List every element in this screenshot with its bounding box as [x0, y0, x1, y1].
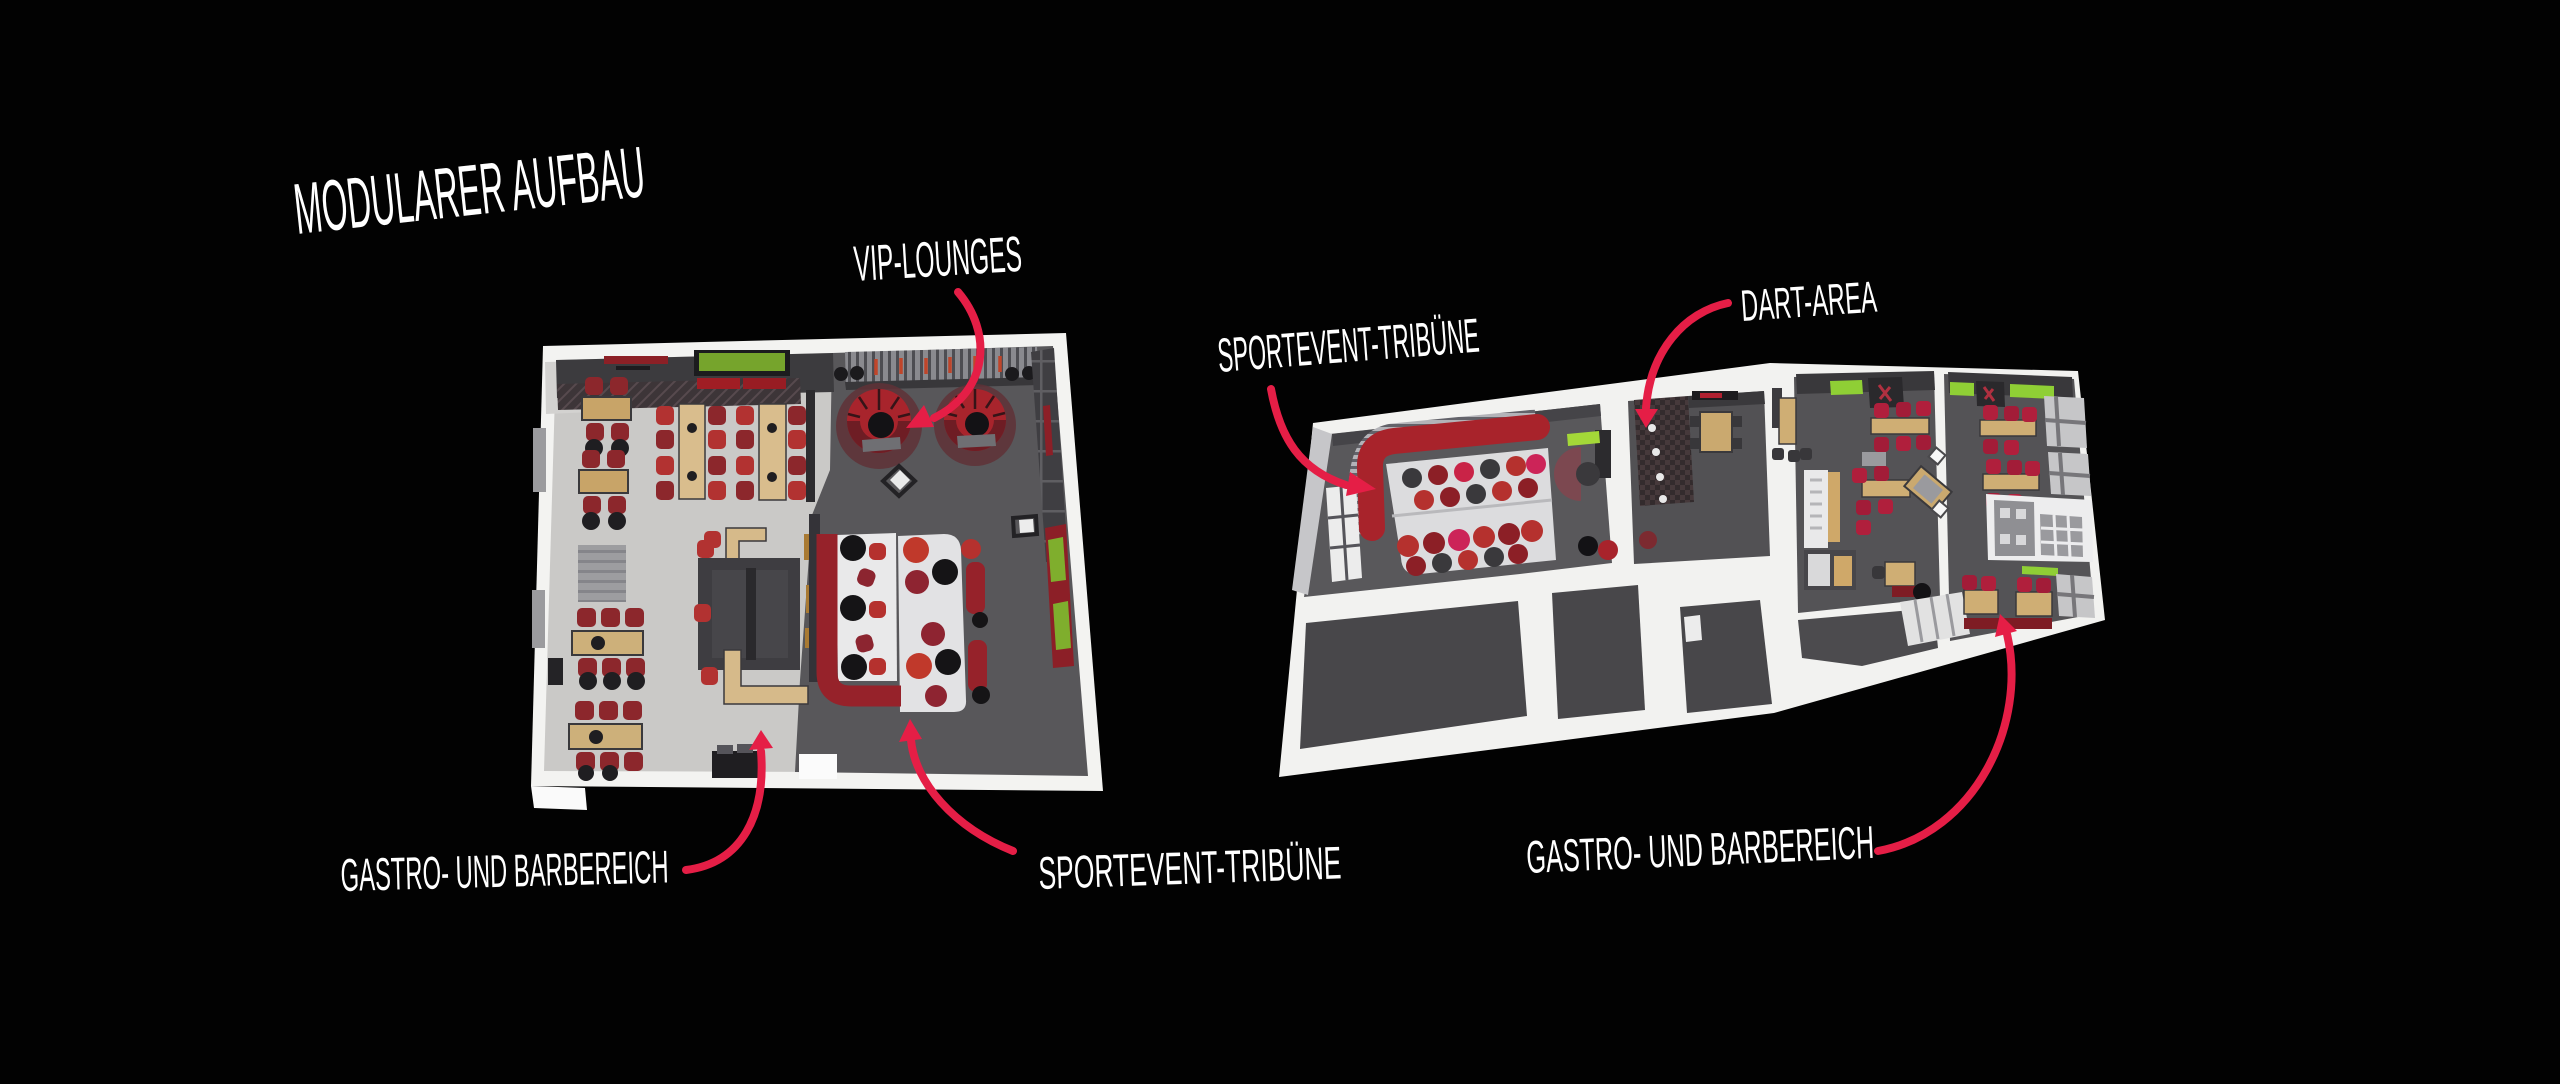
svg-text:DART-AREA: DART-AREA	[1739, 273, 1878, 331]
svg-text:VIP-LOUNGES: VIP-LOUNGES	[852, 226, 1023, 292]
svg-text:SPORTEVENT-TRIBÜNE: SPORTEVENT-TRIBÜNE	[1038, 836, 1343, 899]
svg-text:GASTRO- UND BARBEREICH: GASTRO- UND BARBEREICH	[340, 840, 669, 901]
